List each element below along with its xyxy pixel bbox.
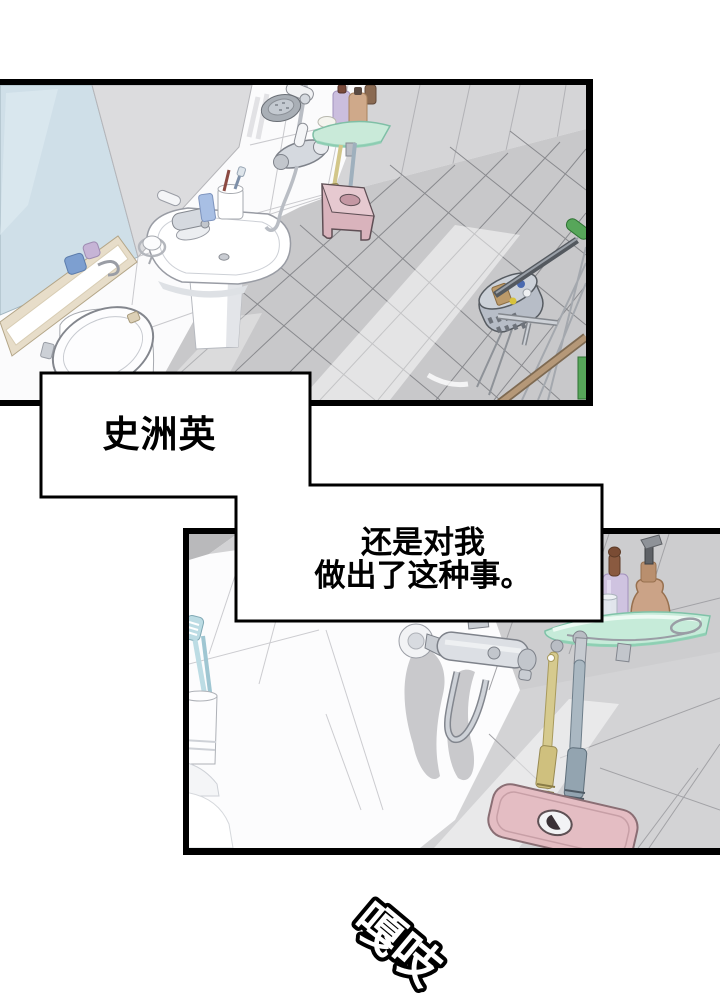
panel-top-bathroom	[0, 79, 593, 406]
speech-line: 做出了这种事。	[315, 559, 532, 592]
speech-text-2: 还是对我 做出了这种事。	[240, 491, 606, 627]
comic-page: 史洲英 还是对我 做出了这种事。 嘎吱	[0, 0, 720, 1007]
speech-line: 史洲英	[103, 404, 217, 458]
speech-line: 还是对我	[361, 526, 485, 559]
speech-text-1: 史洲英	[25, 369, 294, 493]
sfx-creak-text: 嘎吱	[343, 894, 451, 997]
drain	[219, 254, 229, 260]
sfx-svg: 嘎吱	[300, 858, 540, 1007]
top-panel-scene	[0, 85, 586, 400]
sfx-container: 嘎吱	[300, 858, 540, 1007]
